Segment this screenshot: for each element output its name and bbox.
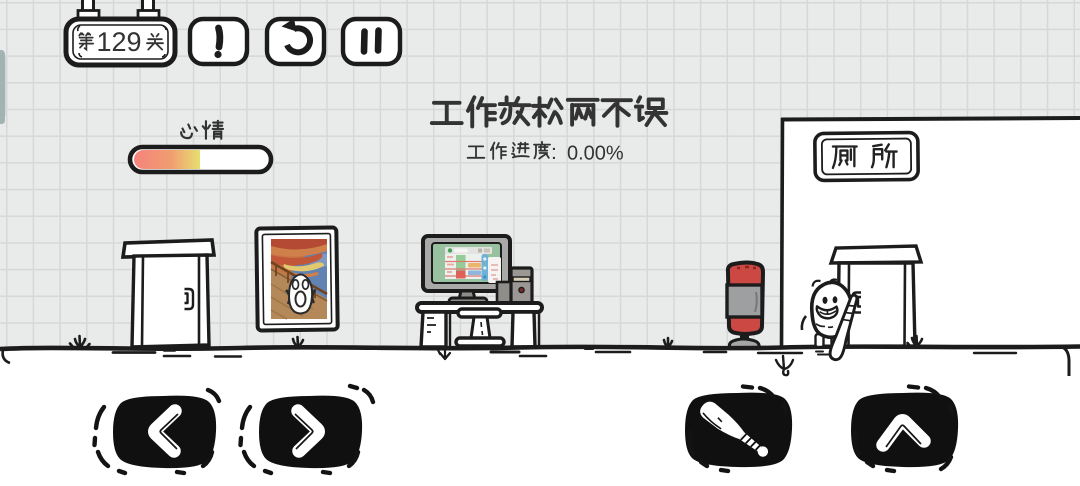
svg-text:129: 129 — [96, 27, 141, 57]
svg-text::: : — [551, 141, 557, 164]
svg-text:0.00%: 0.00% — [567, 143, 624, 165]
